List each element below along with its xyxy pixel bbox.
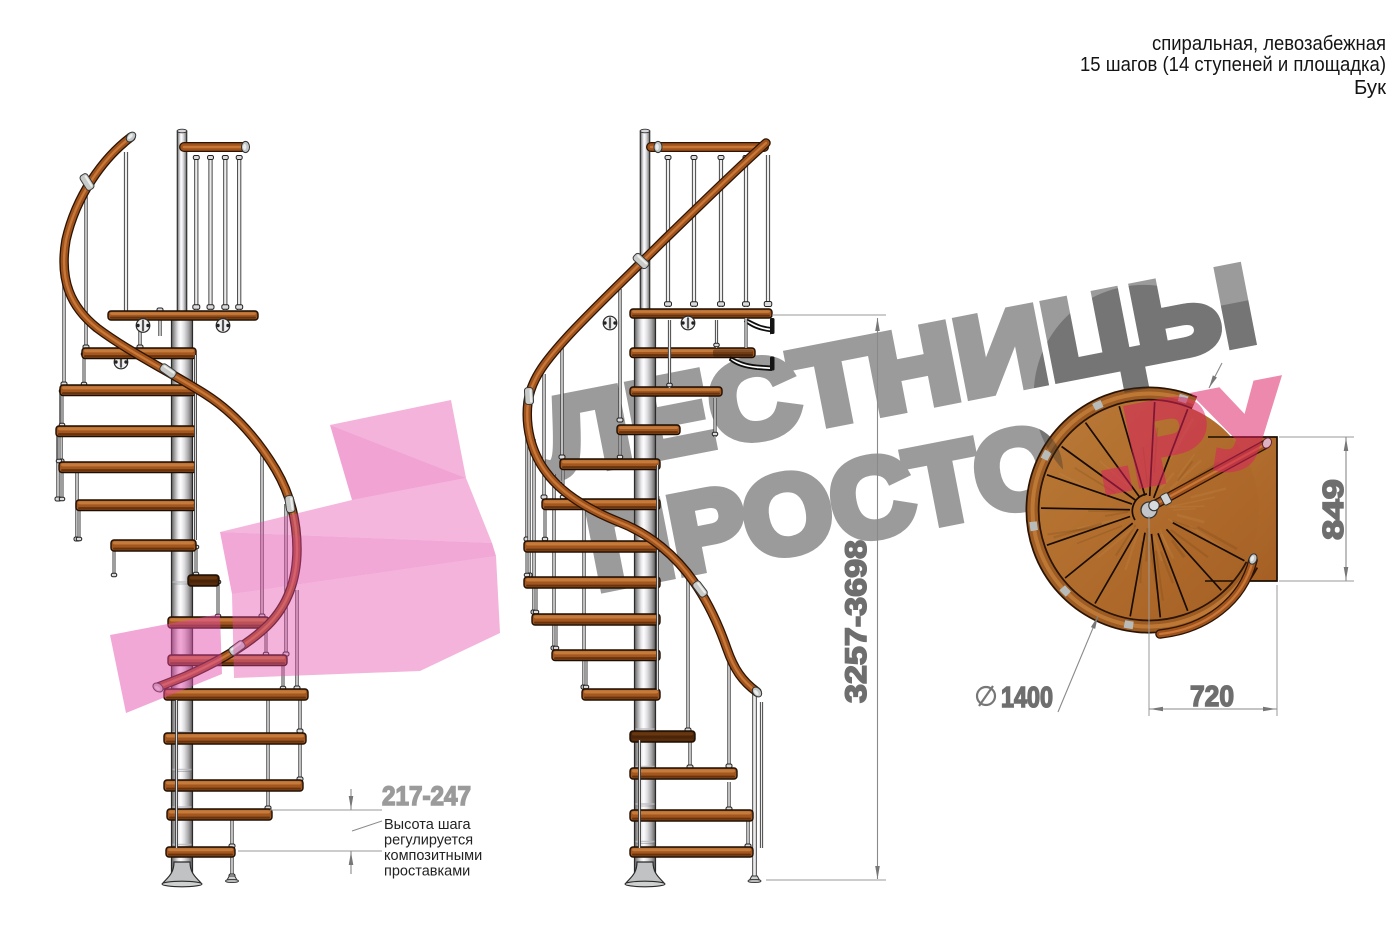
svg-text:проставками: проставками: [384, 864, 470, 880]
svg-text:720: 720: [1190, 681, 1234, 713]
svg-text:1400: 1400: [1001, 682, 1053, 714]
svg-text:15 шагов (14 ступеней и площад: 15 шагов (14 ступеней и площадка): [1080, 54, 1386, 76]
svg-text:композитными: композитными: [384, 848, 482, 864]
svg-text:Высота шага: Высота шага: [384, 817, 471, 833]
svg-text:3257-3698: 3257-3698: [840, 540, 873, 703]
svg-text:спиральная, левозабежная: спиральная, левозабежная: [1152, 33, 1386, 55]
svg-text:217-247: 217-247: [382, 781, 471, 811]
svg-text:регулируется: регулируется: [384, 833, 473, 849]
svg-text:Бук: Бук: [1354, 77, 1386, 99]
svg-text:849: 849: [1318, 479, 1350, 540]
